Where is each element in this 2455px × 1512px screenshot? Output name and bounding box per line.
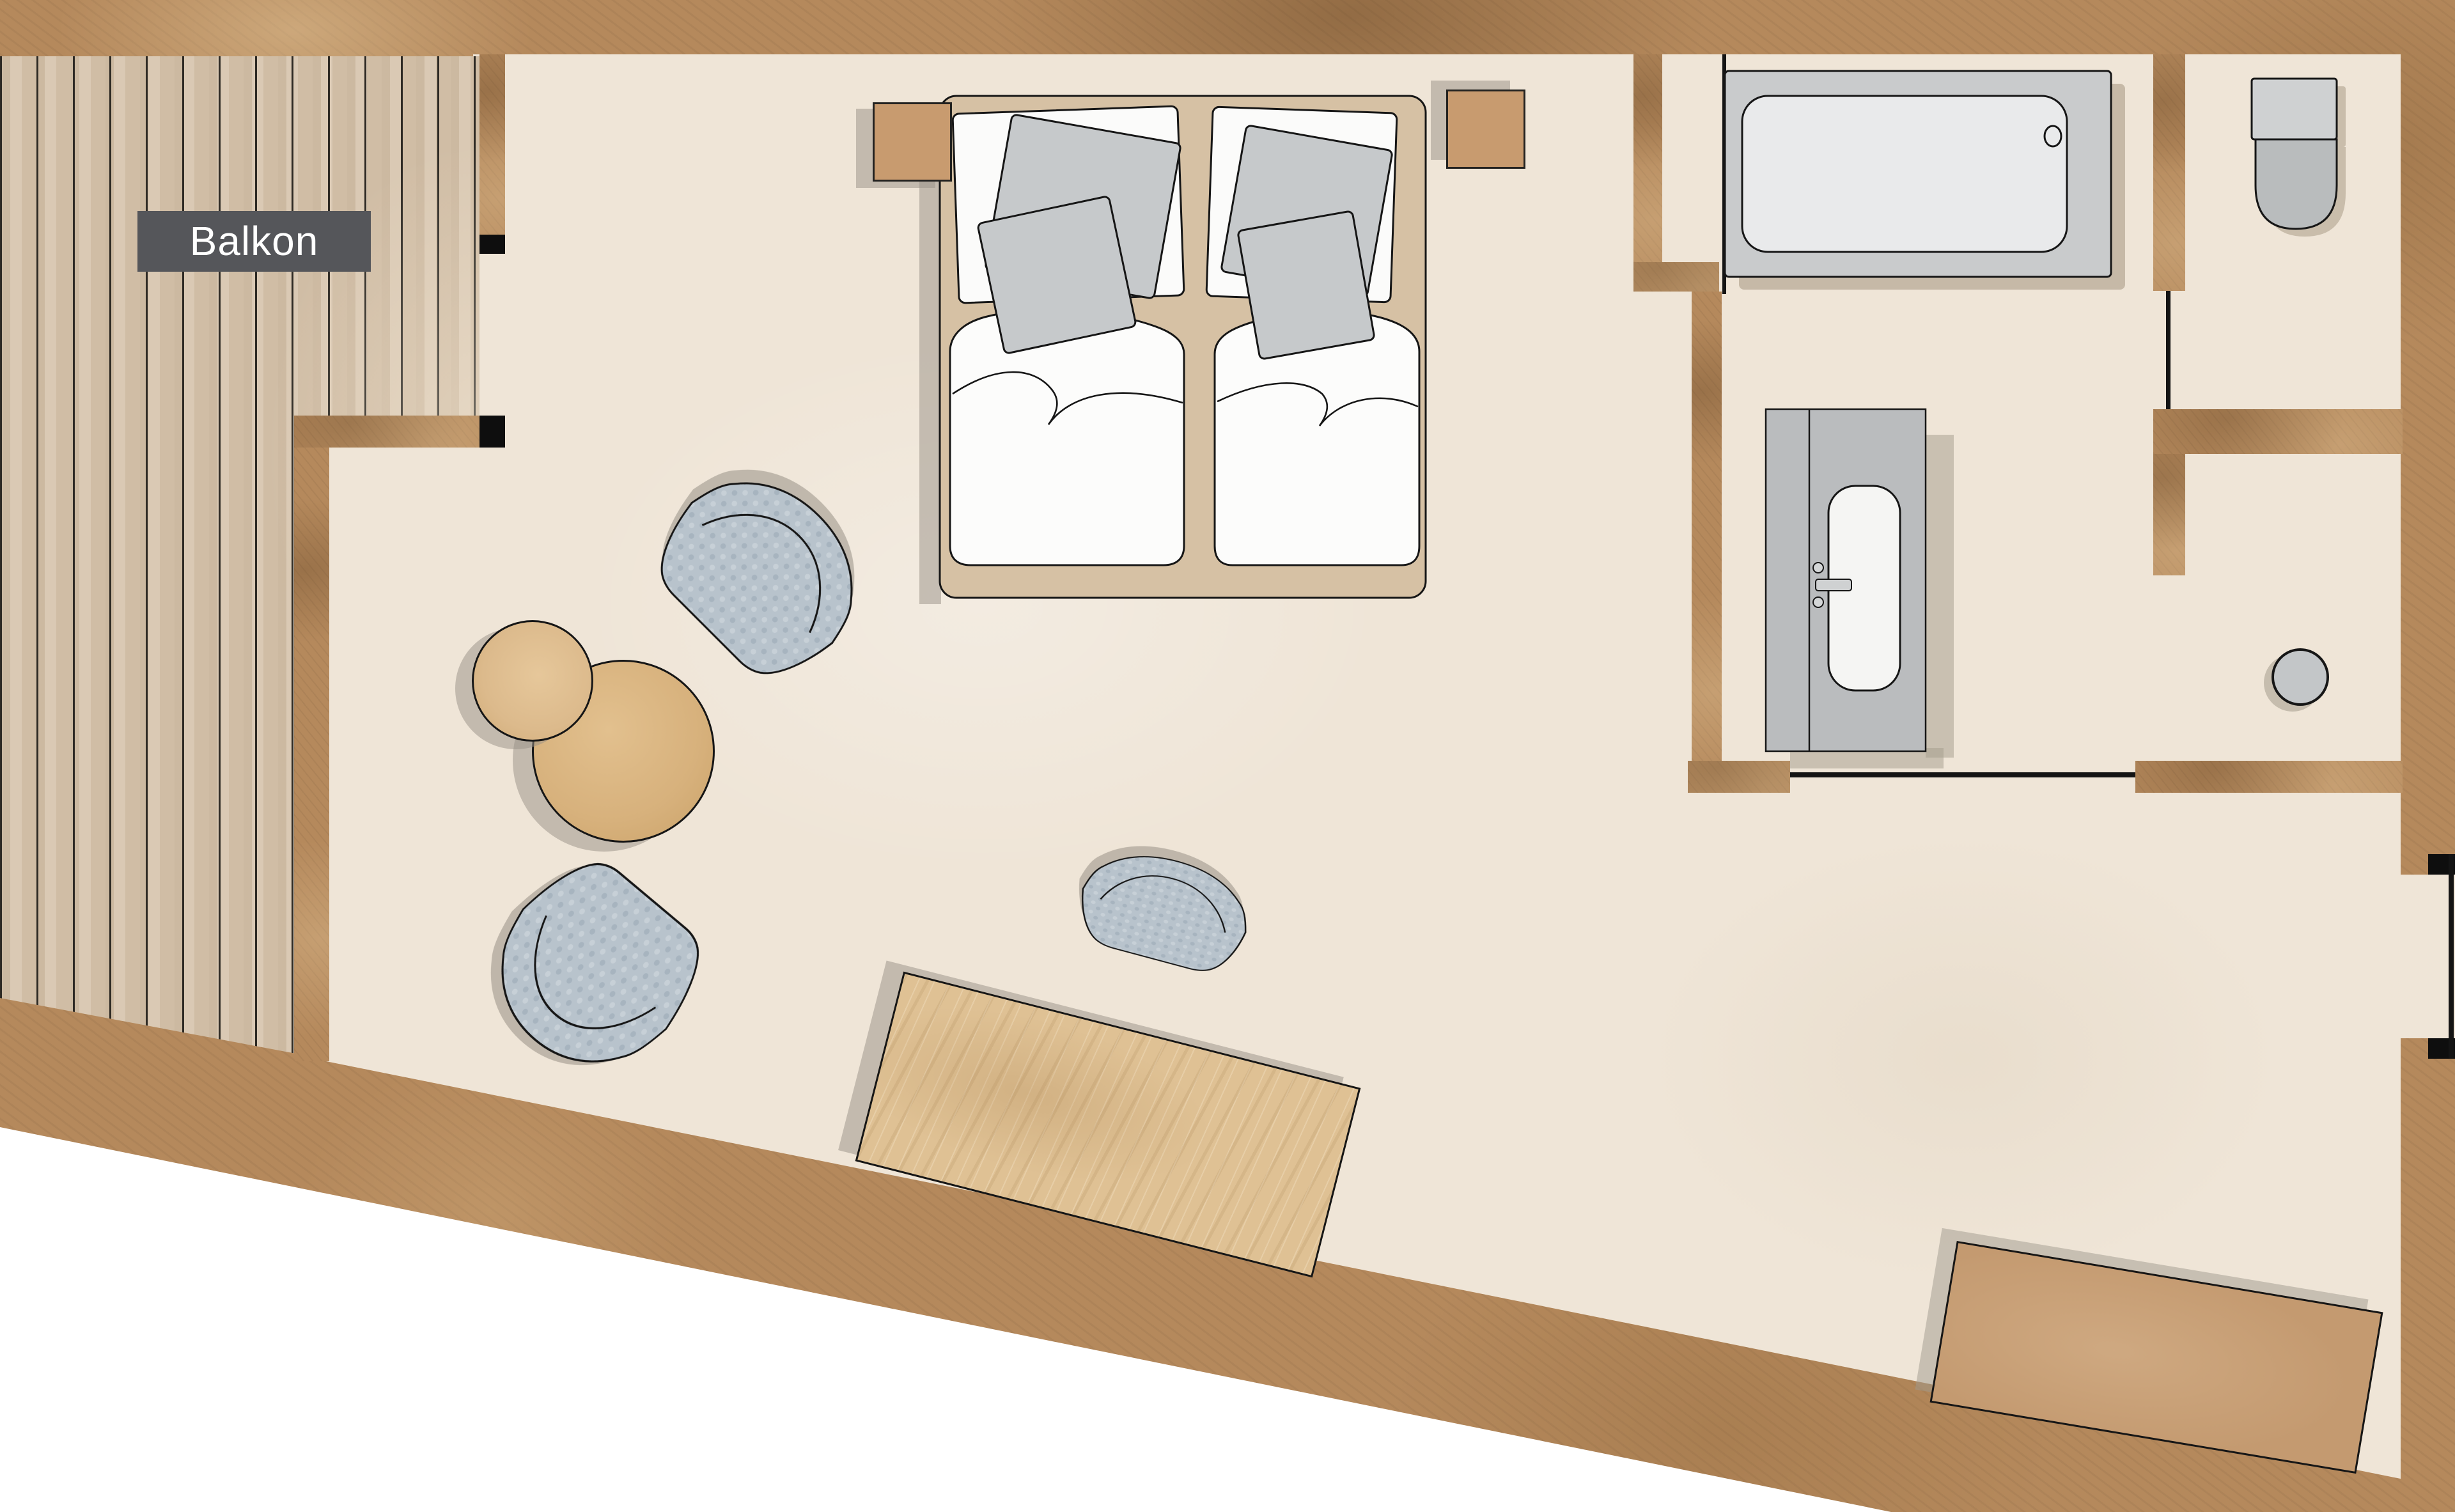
stool	[2272, 648, 2329, 706]
bathroom-wall-a	[1633, 54, 1662, 262]
faucet-icon	[1813, 563, 1823, 573]
bathroom-bottom-wall-right	[2135, 761, 2403, 793]
bathtub-basin	[1742, 96, 2067, 252]
toilet	[2234, 63, 2362, 248]
toilet-room-bottom-wall	[2153, 409, 2403, 454]
window-pane-line	[2449, 854, 2454, 1059]
toilet-door-line	[2166, 291, 2171, 409]
bathroom-wall-jog	[1633, 262, 1719, 292]
nightstand-right	[1446, 90, 1525, 169]
window-opening	[2401, 875, 2455, 1038]
cushion-icon	[978, 196, 1137, 354]
balcony-wall-lower	[294, 448, 329, 1061]
balcony-label: Balkon	[137, 211, 371, 272]
bed-shadow	[919, 112, 941, 604]
coffee-table-small	[472, 620, 593, 742]
balcony-door-jamb-bottom	[479, 416, 505, 448]
double-bed	[908, 83, 1432, 614]
balcony-door-jamb-top	[479, 235, 505, 254]
vanity-sink	[1752, 396, 1963, 774]
bathroom-wall-b	[1692, 292, 1722, 793]
faucet-icon	[1813, 597, 1823, 607]
balcony-wall-upper	[479, 54, 505, 235]
floor-plan: Balkon	[0, 0, 2455, 1512]
drain-icon	[2045, 126, 2061, 146]
nightstand-left	[873, 102, 952, 182]
toilet-bowl	[2256, 139, 2337, 229]
bathtub	[1713, 61, 2148, 310]
vanity-shadow	[1926, 435, 1954, 758]
faucet-handle-icon	[1816, 579, 1851, 591]
toilet-tank	[2252, 79, 2337, 139]
duvet-left-icon	[950, 309, 1184, 565]
closet-nook-stub-wall	[2153, 454, 2185, 575]
cushion-icon	[1238, 211, 1375, 360]
toilet-room-wall	[2153, 54, 2185, 291]
balcony-wall-horizontal	[294, 416, 479, 448]
